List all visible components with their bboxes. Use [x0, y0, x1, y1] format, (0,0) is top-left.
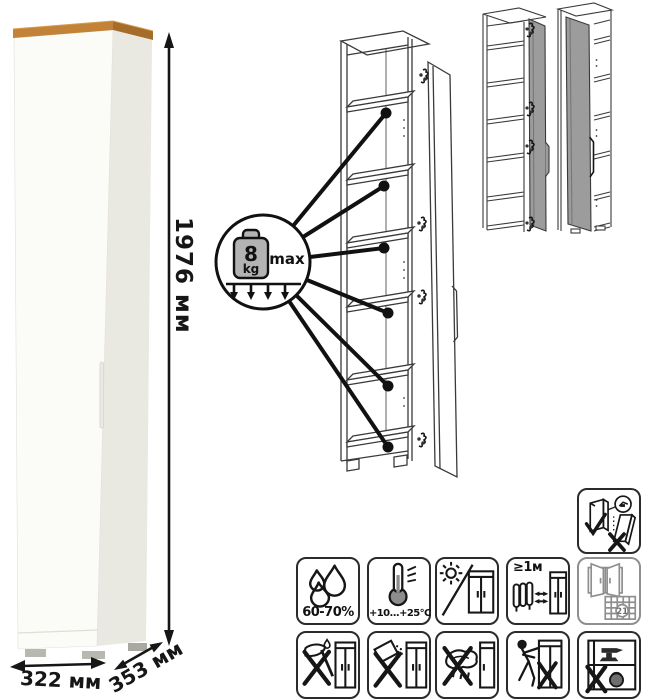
drawing-foot	[394, 455, 407, 467]
care-icon-no-overloading	[577, 631, 641, 699]
sun-slash-icon	[437, 559, 497, 623]
door-variant-left-hinge	[558, 3, 612, 233]
wall-mount-warning-glyph	[579, 490, 639, 552]
drawing-foot	[347, 459, 359, 471]
calendar-day-label: 21	[616, 606, 628, 616]
door-handle-groove	[100, 362, 104, 428]
cross-mark	[305, 652, 329, 684]
cabinet-foot	[25, 649, 46, 657]
kettlebell	[610, 673, 623, 686]
care-icon-temperature: +10...+25°C	[367, 557, 431, 625]
wet-sponge-crossed-icon	[437, 633, 497, 697]
cabinet-door-front	[14, 30, 113, 649]
care-icon-heat-distance: ≥1м	[506, 557, 570, 625]
humidity-range-label: 60-70%	[298, 605, 358, 620]
width-dimension-label: 322 мм	[19, 666, 102, 694]
temperature-range-label: +10...+25°C	[369, 608, 429, 619]
care-icon-no-wet-cleaning	[435, 631, 499, 699]
variant-shelves	[487, 41, 524, 201]
cabinet-foot	[128, 643, 147, 651]
cross-mark	[587, 667, 605, 691]
door-handle	[545, 142, 549, 177]
person-head	[517, 640, 526, 649]
care-icon-no-dragging	[506, 631, 570, 699]
open-door	[428, 62, 458, 477]
height-dimension-label: 1976 мм	[170, 217, 196, 334]
height-arrow	[164, 32, 174, 646]
window-calendar-icon: 21	[579, 559, 639, 623]
cabinet-top-face	[341, 31, 429, 55]
anvil	[600, 648, 623, 661]
abrasive-powder-crossed-icon	[369, 633, 429, 697]
axe-crossed-icon	[298, 633, 358, 697]
wall-mount-warning-icon	[577, 488, 641, 554]
gray-door-right	[529, 19, 546, 231]
cabinet-render	[13, 21, 153, 659]
max-load-qualifier: max	[269, 250, 305, 268]
care-icon-no-abrasives	[367, 631, 431, 699]
checkmark	[587, 514, 606, 533]
person-dragging-crossed-icon	[508, 633, 568, 697]
care-icon-humidity: 60-70%	[296, 557, 360, 625]
care-icon-no-direct-sunlight	[435, 557, 499, 625]
open-cabinet-drawing	[341, 31, 458, 477]
overload-crossed-icon	[579, 633, 639, 697]
shelf-pin-holes	[403, 119, 405, 407]
care-icon-ventilation: 21	[577, 557, 641, 625]
product-diagram-page: 1976 мм 322 мм 353 мм 8 kg max	[0, 0, 648, 700]
shelves	[347, 91, 414, 447]
cross-mark	[539, 663, 556, 687]
care-icon-no-sharp-tools	[296, 631, 360, 699]
cabinet-foot	[82, 651, 105, 659]
max-load-unit: kg	[236, 262, 266, 276]
min-distance-label: ≥1м	[513, 560, 542, 575]
door-variant-right-hinge	[483, 8, 549, 232]
